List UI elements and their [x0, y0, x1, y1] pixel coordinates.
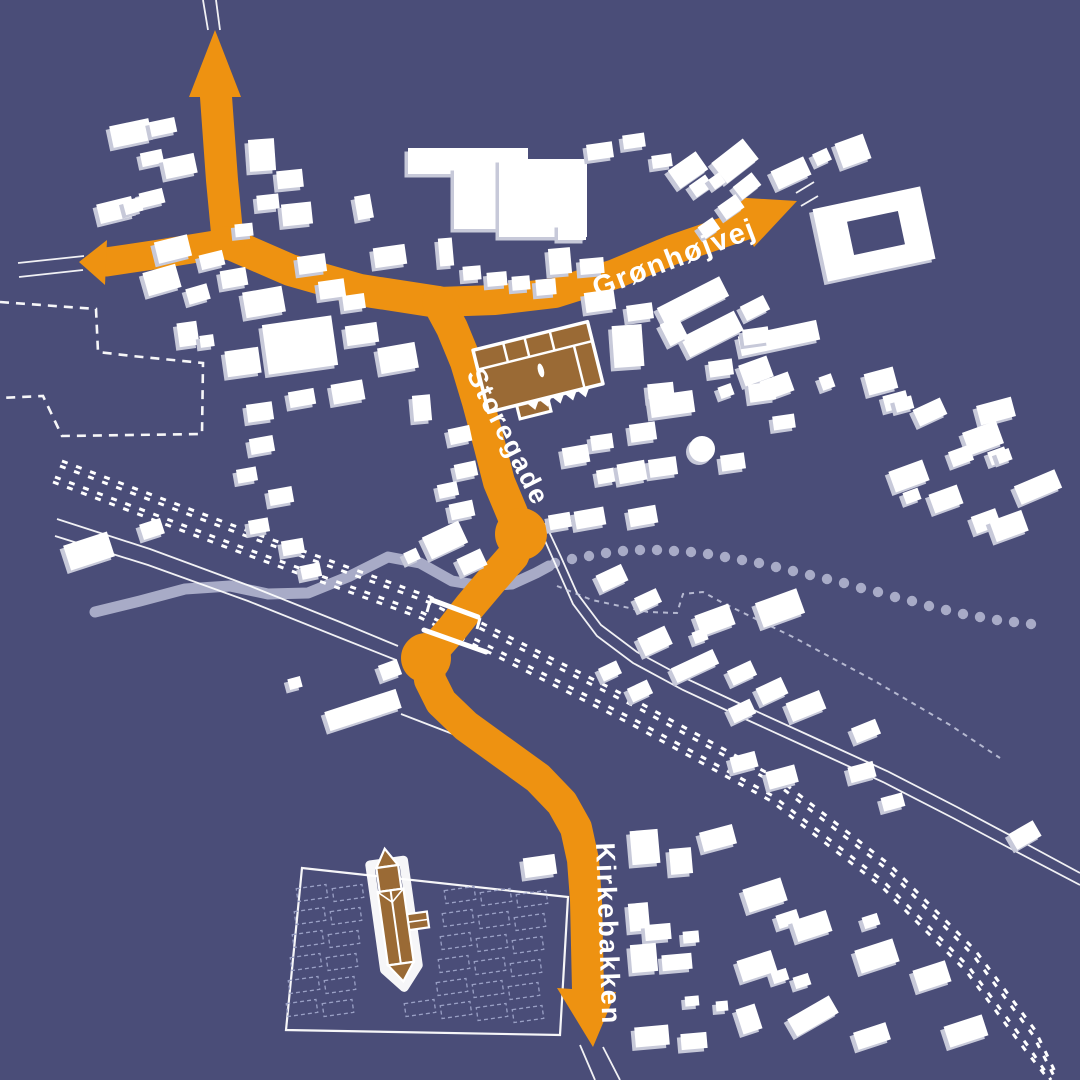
map-svg: Grønhøjvej Storegade Kirkebakken — [0, 0, 1080, 1080]
road-bulge-south — [401, 633, 451, 683]
road-bulge-north — [495, 508, 547, 560]
town-map: Grønhøjvej Storegade Kirkebakken — [0, 0, 1080, 1080]
road-north-leg — [216, 97, 228, 243]
road-label-kirkebakken: Kirkebakken — [590, 842, 626, 1026]
